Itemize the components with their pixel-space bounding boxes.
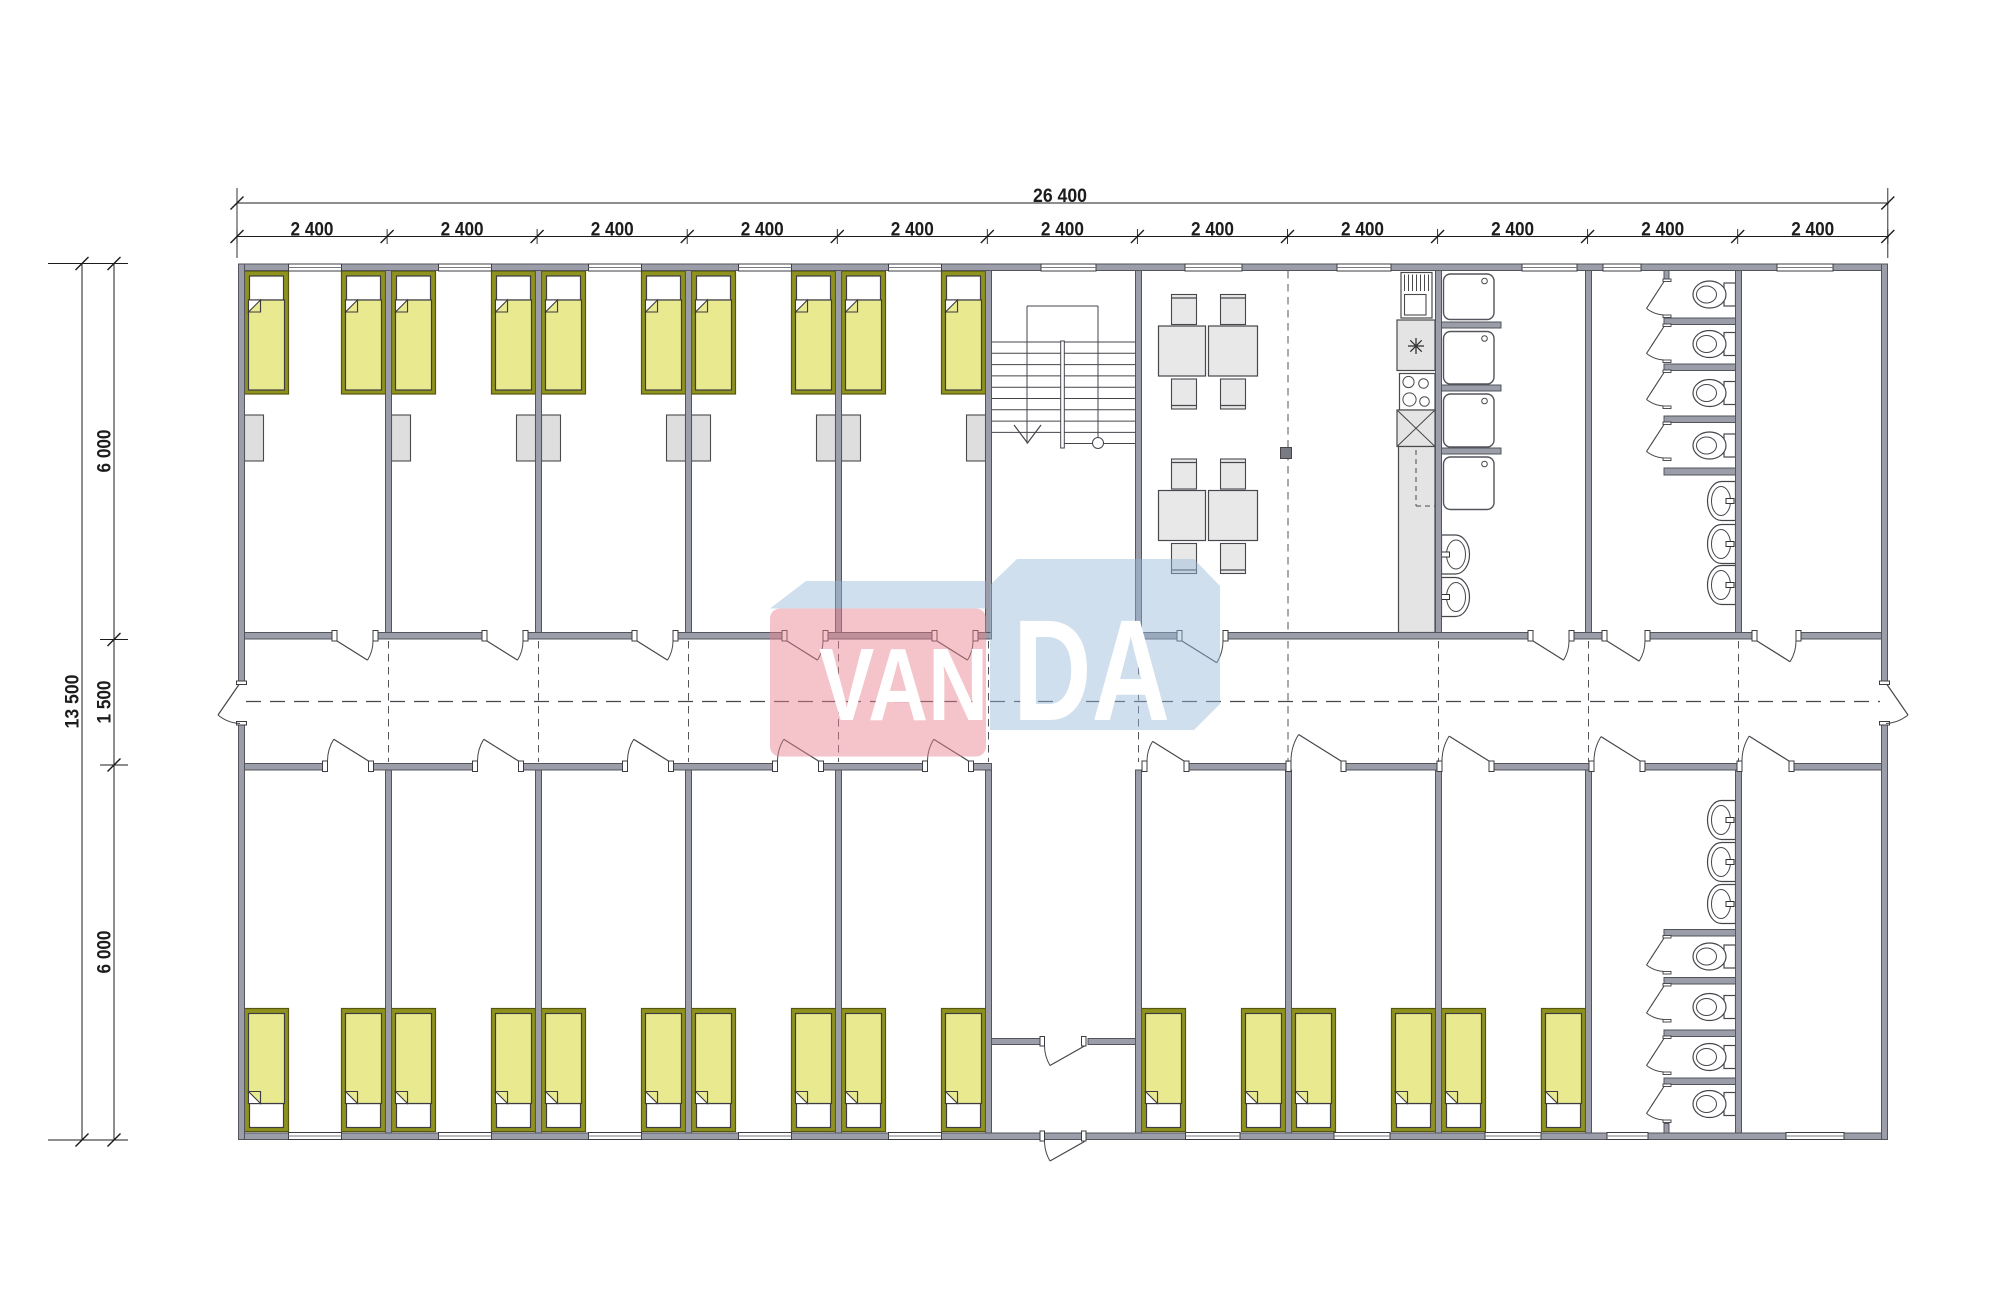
svg-text:2 400: 2 400 [1791, 219, 1834, 241]
svg-text:2 400: 2 400 [741, 219, 784, 241]
svg-text:6 000: 6 000 [94, 429, 116, 472]
svg-text:2 400: 2 400 [1491, 219, 1534, 241]
svg-text:2 400: 2 400 [1191, 219, 1234, 241]
svg-text:DA: DA [1013, 590, 1170, 751]
svg-text:2 400: 2 400 [591, 219, 634, 241]
svg-text:2 400: 2 400 [441, 219, 484, 241]
svg-text:13 500: 13 500 [62, 674, 84, 728]
svg-text:2 400: 2 400 [291, 219, 334, 241]
svg-text:2 400: 2 400 [1041, 219, 1084, 241]
svg-text:2 400: 2 400 [1641, 219, 1684, 241]
svg-text:2 400: 2 400 [891, 219, 934, 241]
svg-text:VAN: VAN [819, 627, 988, 742]
svg-text:26 400: 26 400 [1033, 185, 1087, 207]
svg-text:1 500: 1 500 [94, 680, 116, 723]
svg-text:6 000: 6 000 [94, 930, 116, 973]
svg-text:2 400: 2 400 [1341, 219, 1384, 241]
